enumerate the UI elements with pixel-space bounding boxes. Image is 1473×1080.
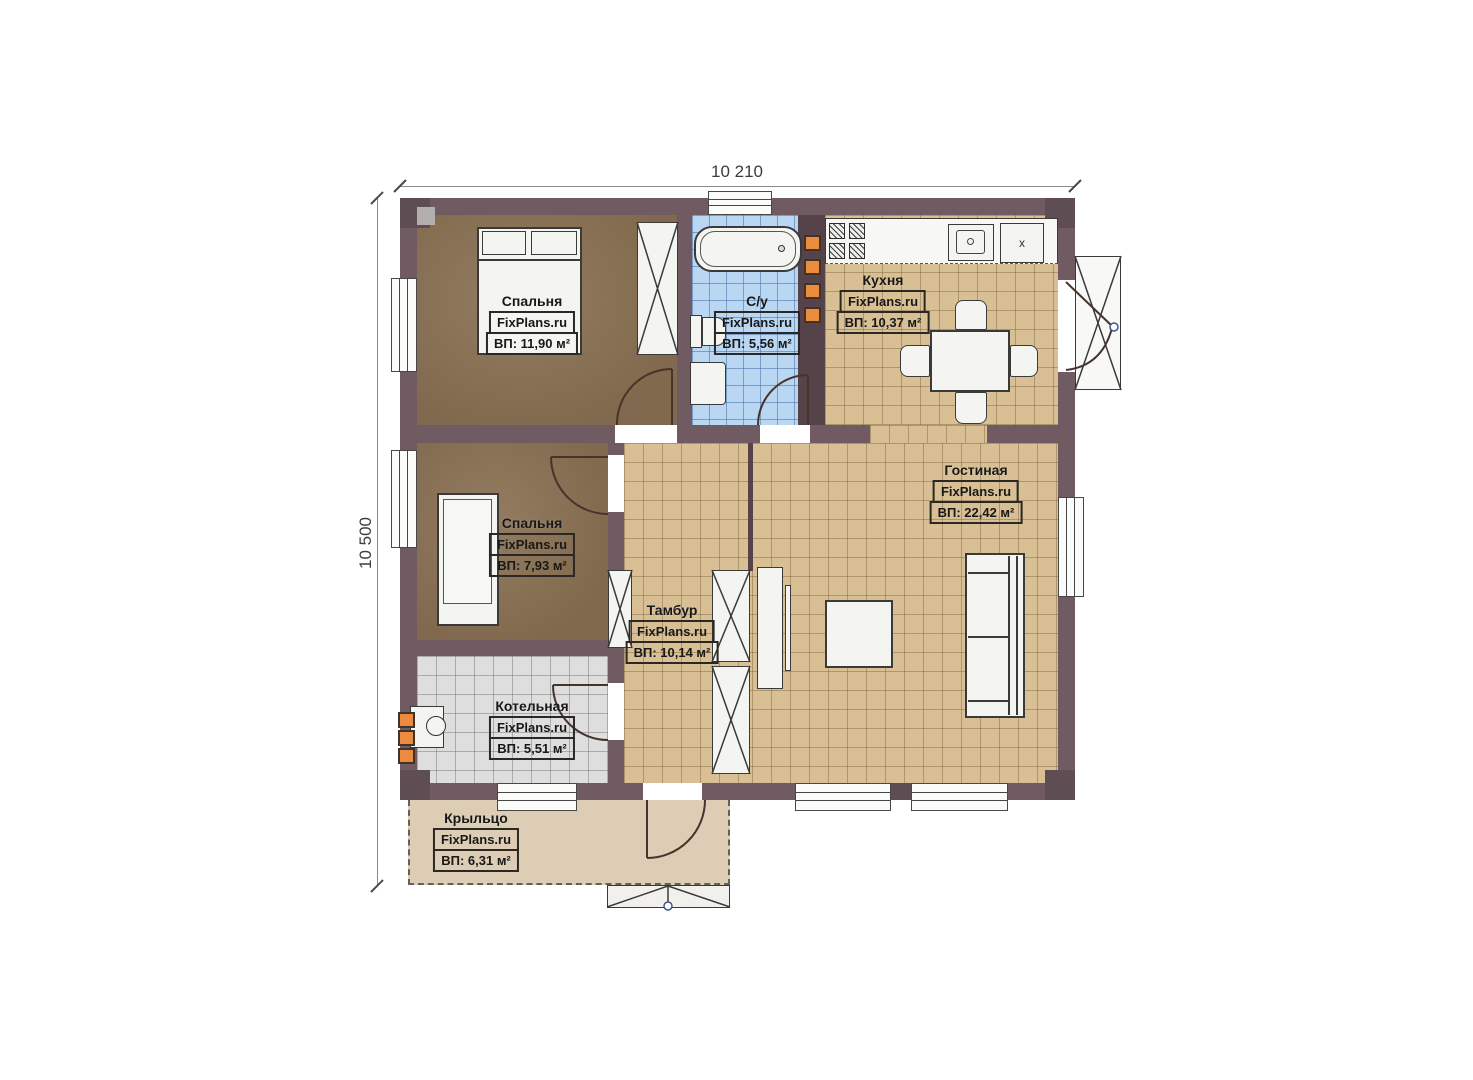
wall-middle-segment xyxy=(987,425,1058,443)
wall-corner-pier xyxy=(400,770,430,800)
coffee-table xyxy=(825,600,893,668)
brand-box: FixPlans.ru xyxy=(489,311,575,334)
chimney-block xyxy=(804,283,821,299)
wall-partition-tv xyxy=(748,443,753,571)
room-label-boiler: Котельная FixPlans.ru ВП: 5,51 м² xyxy=(489,698,575,760)
boiler-vent-block xyxy=(398,748,415,764)
stove-burner xyxy=(849,243,865,259)
chair-top xyxy=(955,300,987,330)
exterior-side-porch xyxy=(1075,256,1121,390)
brand-box: FixPlans.ru xyxy=(433,828,519,851)
chimney-block xyxy=(804,235,821,251)
area-box: ВП: 11,90 м² xyxy=(486,332,578,355)
sofa-seat-line xyxy=(968,636,1008,638)
boiler-vent-block xyxy=(398,730,415,746)
dimension-height-label: 10 500 xyxy=(356,517,376,569)
window-bottom-boiler xyxy=(497,783,577,811)
entrance-step xyxy=(607,885,730,908)
room-label-living: Гостиная FixPlans.ru ВП: 22,42 м² xyxy=(930,462,1023,524)
dimension-line-top xyxy=(400,186,1075,187)
room-name: Котельная xyxy=(495,698,568,714)
room-name: Кухня xyxy=(863,272,904,288)
room-label-bathroom: С/у FixPlans.ru ВП: 5,56 м² xyxy=(714,293,800,355)
area-box: ВП: 22,42 м² xyxy=(930,501,1023,524)
wall-bedroom2-boiler xyxy=(400,640,624,656)
stove-burner xyxy=(829,243,845,259)
chair-left xyxy=(900,345,930,377)
brand-box: FixPlans.ru xyxy=(840,290,926,313)
wall-corner-pier xyxy=(1045,770,1075,800)
wardrobe-tambour-right-2 xyxy=(712,666,750,774)
brand-box: FixPlans.ru xyxy=(714,311,800,334)
room-label-tambour: Тамбур FixPlans.ru ВП: 10,14 м² xyxy=(626,602,719,664)
tv-screen xyxy=(785,585,791,671)
floor-plan-canvas: 10 210 10 500 xyxy=(0,0,1473,1080)
wall-inner-pier xyxy=(417,207,435,225)
window-left-bedroom-2 xyxy=(391,450,417,548)
area-box: ВП: 10,37 м² xyxy=(837,311,930,334)
window-right-living xyxy=(1058,497,1084,597)
dining-table xyxy=(930,330,1010,392)
wall-pier-between-windows xyxy=(891,783,911,800)
room-name: Гостиная xyxy=(944,462,1007,478)
door-opening-bathroom xyxy=(760,425,810,443)
room-name: Крыльцо xyxy=(444,810,508,826)
room-name: С/у xyxy=(746,293,768,309)
stove-burner xyxy=(829,223,845,239)
area-box: ВП: 5,51 м² xyxy=(489,737,575,760)
wall-middle-segment xyxy=(400,425,615,443)
door-opening-bedroom-1 xyxy=(615,425,677,443)
room-label-kitchen: Кухня FixPlans.ru ВП: 10,37 м² xyxy=(837,272,930,334)
dimension-line-left xyxy=(377,198,378,886)
window-left-bedroom-1 xyxy=(391,278,417,372)
chair-bottom xyxy=(955,392,987,424)
bed-blanket-line xyxy=(479,259,580,261)
door-opening-entrance xyxy=(643,783,702,800)
wall-middle-segment xyxy=(810,425,870,443)
fridge-label: x xyxy=(1019,236,1025,250)
washing-machine xyxy=(690,362,726,405)
sofa-backrest-line xyxy=(1016,556,1018,715)
fridge-box: x xyxy=(1000,223,1044,263)
door-opening-bedroom-2 xyxy=(608,455,624,512)
chimney-block xyxy=(804,307,821,323)
boiler-vent-block xyxy=(398,712,415,728)
room-label-bedroom-2: Спальня FixPlans.ru ВП: 7,93 м² xyxy=(489,515,575,577)
chair-right xyxy=(1010,345,1038,377)
window-bottom-living-1 xyxy=(795,783,891,811)
door-opening-boiler xyxy=(608,683,624,740)
room-name: Спальня xyxy=(502,515,562,531)
area-box: ВП: 5,56 м² xyxy=(714,332,800,355)
sofa-armrest-line xyxy=(968,700,1008,702)
area-box: ВП: 10,14 м² xyxy=(626,641,719,664)
room-label-porch: Крыльцо FixPlans.ru ВП: 6,31 м² xyxy=(433,810,519,872)
area-box: ВП: 7,93 м² xyxy=(489,554,575,577)
stove-burner xyxy=(849,223,865,239)
tv-stand xyxy=(757,567,783,689)
door-opening-kitchen-exterior xyxy=(1058,280,1075,372)
chimney-block xyxy=(804,259,821,275)
boiler-dial xyxy=(426,716,446,736)
toilet-tank xyxy=(690,315,702,348)
brand-box: FixPlans.ru xyxy=(489,533,575,556)
pillow xyxy=(531,231,577,255)
room-label-bedroom-1: Спальня FixPlans.ru ВП: 11,90 м² xyxy=(486,293,578,355)
sofa-armrest-line xyxy=(968,572,1008,574)
area-box: ВП: 6,31 м² xyxy=(433,849,519,872)
window-bottom-living-2 xyxy=(911,783,1008,811)
brand-box: FixPlans.ru xyxy=(629,620,715,643)
pillow xyxy=(482,231,526,255)
brand-box: FixPlans.ru xyxy=(933,480,1019,503)
wall-middle-segment xyxy=(677,425,760,443)
window-top-bathroom xyxy=(708,191,772,215)
wardrobe-bedroom-1 xyxy=(637,222,678,355)
dimension-width-label: 10 210 xyxy=(711,162,763,182)
bed-single-mattress xyxy=(443,499,492,604)
room-name: Спальня xyxy=(502,293,562,309)
room-name: Тамбур xyxy=(647,602,698,618)
sofa-backrest-line xyxy=(1008,556,1010,715)
brand-box: FixPlans.ru xyxy=(489,716,575,739)
passage-kitchen-living xyxy=(870,425,987,443)
kitchen-sink-drain xyxy=(967,238,974,245)
bathtub-drain xyxy=(778,245,785,252)
